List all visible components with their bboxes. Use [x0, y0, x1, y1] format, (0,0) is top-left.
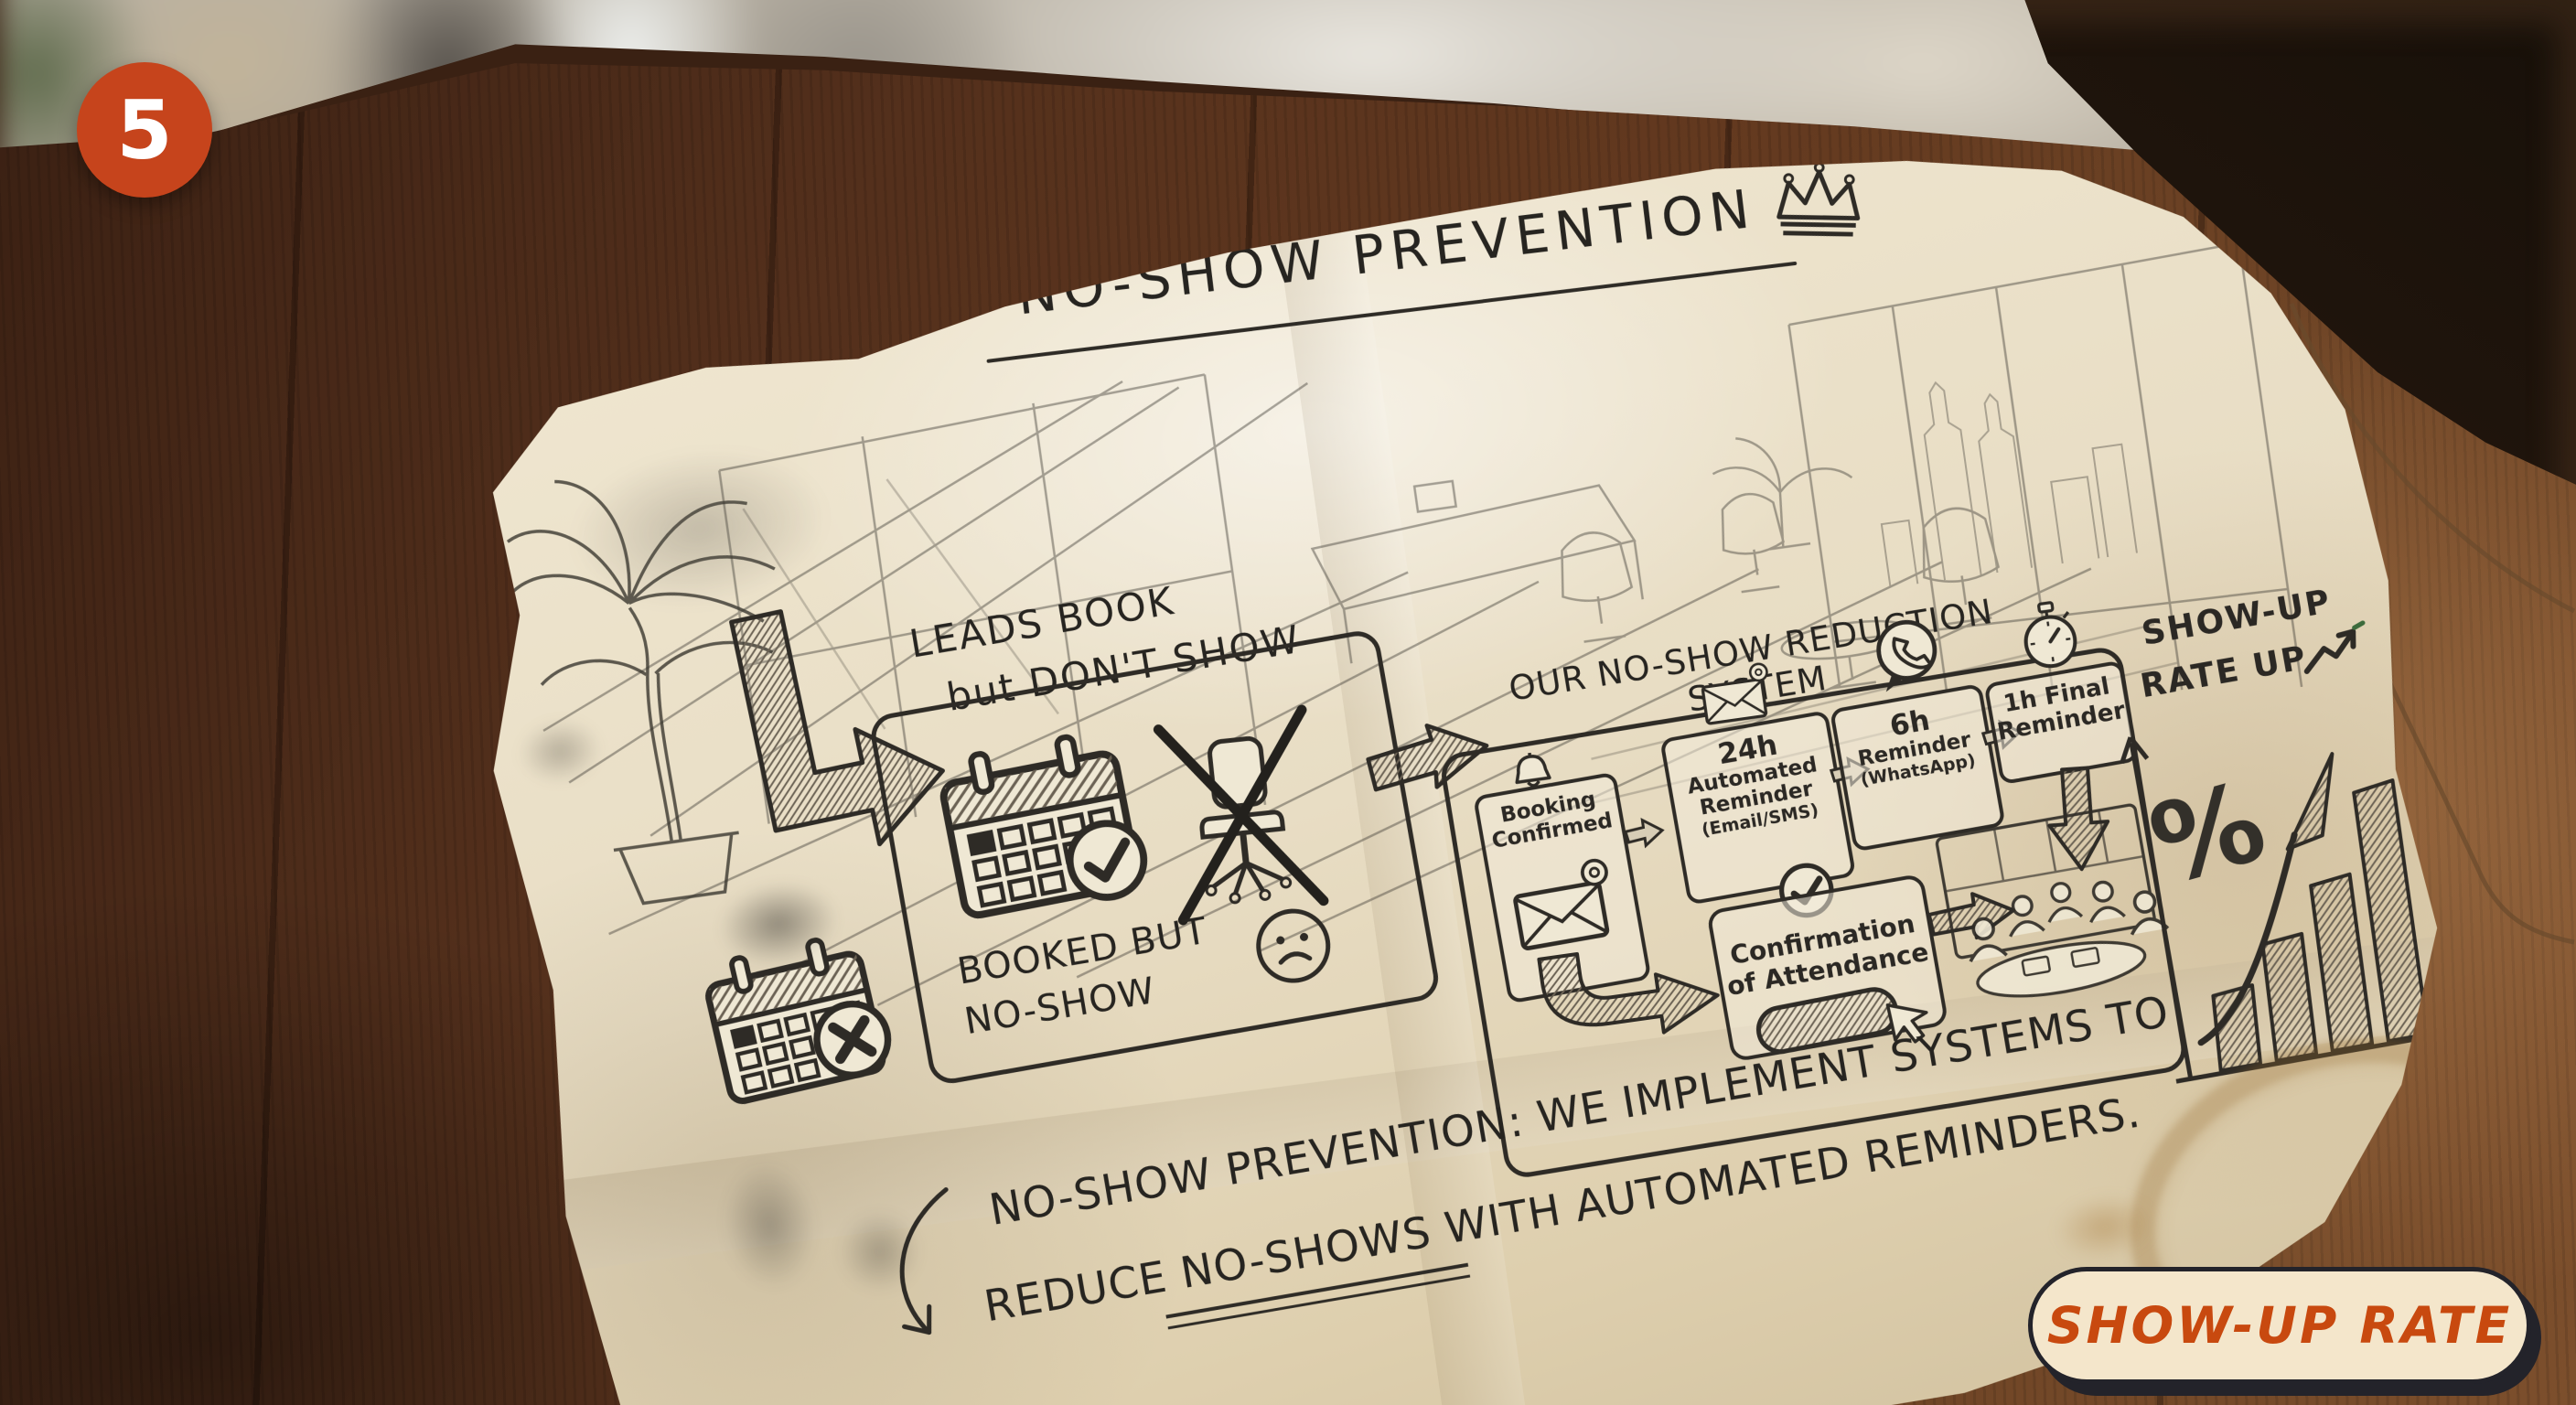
whatsapp-icon [1862, 610, 1951, 699]
crown-icon [1764, 159, 1873, 243]
sad-face-icon [1248, 900, 1338, 991]
step-label: Booking Confirmed [1478, 785, 1622, 855]
slide-number: 5 [116, 83, 172, 177]
step-arrow-icon [1622, 813, 1669, 852]
stopwatch-icon [2015, 596, 2085, 675]
email-at-icon [1697, 660, 1776, 728]
email-icon [1506, 854, 1621, 955]
slide: NO-SHOW PREVENTION LEADS BOOK but DON'T … [0, 0, 2576, 1405]
show-up-rate-button-label: SHOW-UP RATE [2047, 1296, 2512, 1355]
show-up-rate-button[interactable]: SHOW-UP RATE [2028, 1267, 2531, 1384]
slide-number-badge: 5 [77, 62, 212, 198]
